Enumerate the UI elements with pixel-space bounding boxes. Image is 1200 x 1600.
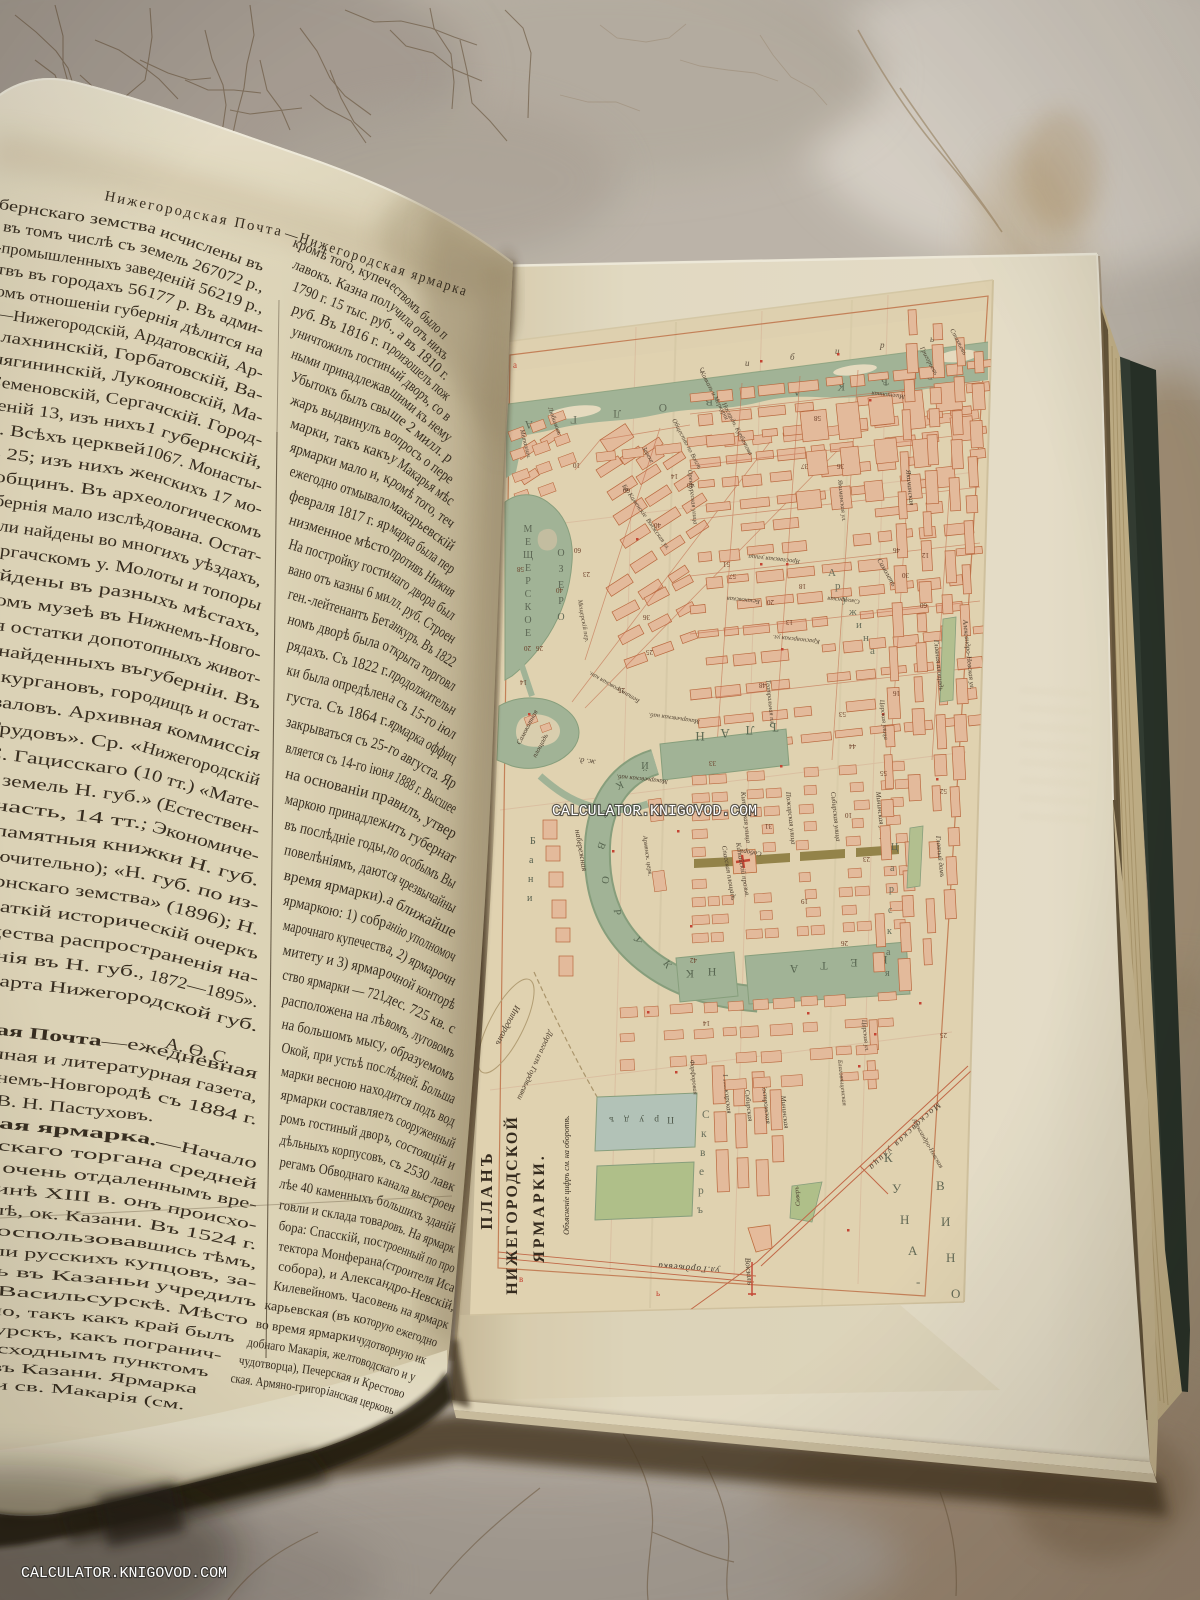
svg-text:CALCULATOR.KNIGOVOD.COM: CALCULATOR.KNIGOVOD.COM	[552, 803, 757, 820]
svg-text:CALCULATOR.KNIGOVOD.COM: CALCULATOR.KNIGOVOD.COM	[21, 1565, 227, 1582]
